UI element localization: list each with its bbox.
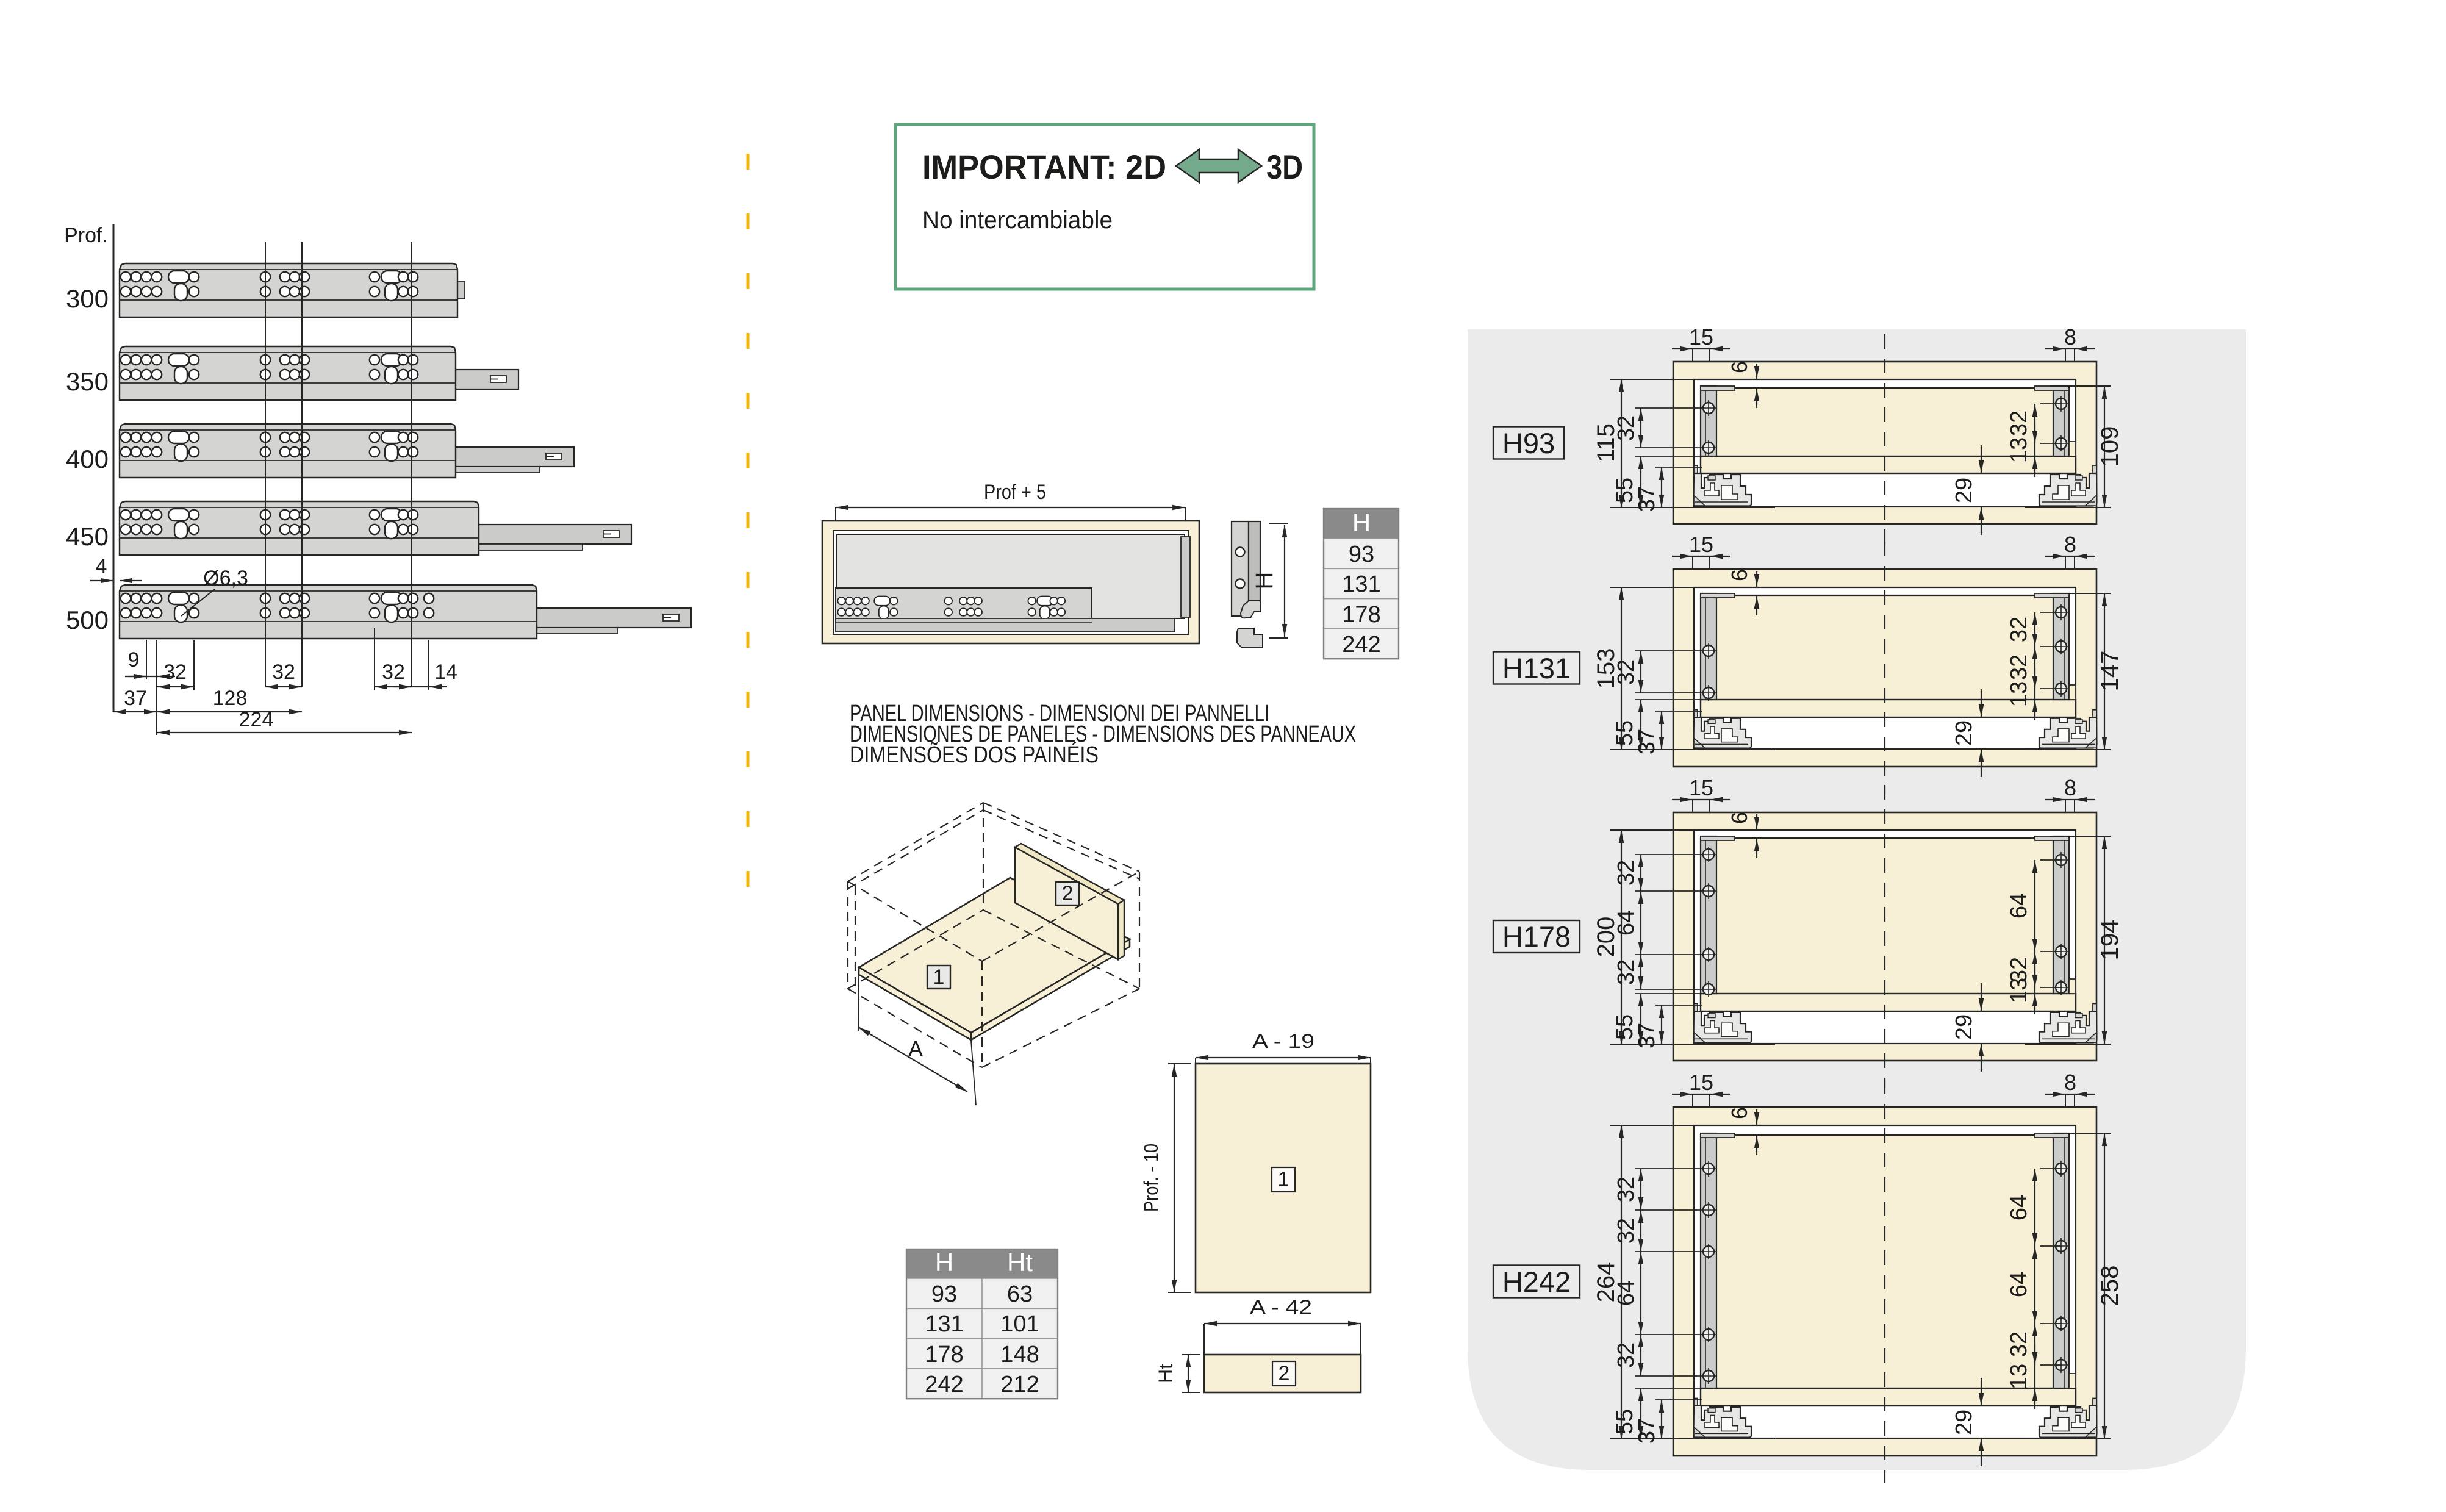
svg-text:500: 500 — [66, 606, 109, 634]
svg-text:A - 42: A - 42 — [1250, 1296, 1312, 1318]
svg-text:29: 29 — [1951, 720, 1977, 746]
svg-text:32: 32 — [1613, 1177, 1639, 1202]
svg-text:178: 178 — [1342, 602, 1380, 628]
svg-text:H: H — [1251, 572, 1278, 590]
svg-text:212: 212 — [1000, 1372, 1039, 1397]
svg-text:128: 128 — [213, 687, 248, 710]
svg-text:64: 64 — [1613, 910, 1639, 936]
svg-text:15: 15 — [1689, 1070, 1713, 1095]
svg-text:29: 29 — [1951, 1410, 1977, 1435]
svg-text:8: 8 — [2064, 324, 2076, 349]
svg-text:15: 15 — [1689, 324, 1713, 349]
svg-text:32: 32 — [272, 661, 295, 684]
svg-text:93: 93 — [931, 1281, 957, 1307]
svg-text:64: 64 — [2006, 893, 2032, 919]
svg-text:242: 242 — [1342, 632, 1380, 657]
svg-text:242: 242 — [925, 1372, 963, 1397]
svg-text:A - 19: A - 19 — [1252, 1030, 1314, 1052]
svg-text:64: 64 — [2006, 1272, 2032, 1297]
svg-text:6: 6 — [1727, 569, 1752, 581]
svg-text:64: 64 — [1613, 1280, 1639, 1306]
svg-text:194: 194 — [2096, 920, 2123, 961]
svg-text:258: 258 — [2096, 1266, 2123, 1306]
svg-text:101: 101 — [1000, 1311, 1039, 1337]
svg-text:1: 1 — [933, 966, 945, 989]
svg-text:32: 32 — [1613, 415, 1639, 441]
svg-text:350: 350 — [66, 367, 109, 396]
svg-text:32: 32 — [1613, 860, 1639, 886]
svg-text:Prof.: Prof. — [64, 224, 108, 247]
svg-text:Ht: Ht — [1155, 1364, 1177, 1383]
svg-text:29: 29 — [1951, 1014, 1977, 1040]
svg-text:178: 178 — [925, 1342, 963, 1367]
svg-text:13: 13 — [2006, 681, 2032, 707]
svg-text:A: A — [908, 1036, 923, 1061]
svg-text:32: 32 — [1613, 959, 1639, 985]
svg-text:3D: 3D — [1266, 148, 1303, 186]
svg-text:63: 63 — [1007, 1281, 1033, 1307]
svg-text:13: 13 — [2006, 437, 2032, 463]
svg-text:15: 15 — [1689, 775, 1713, 800]
svg-text:H242: H242 — [1502, 1266, 1571, 1298]
svg-text:8: 8 — [2064, 532, 2076, 557]
svg-text:Prof + 5: Prof + 5 — [984, 481, 1046, 504]
svg-text:H178: H178 — [1502, 920, 1571, 953]
svg-text:H: H — [935, 1248, 953, 1277]
svg-text:64: 64 — [2006, 1195, 2032, 1220]
svg-text:6: 6 — [1727, 361, 1752, 373]
svg-text:450: 450 — [66, 522, 109, 551]
svg-text:147: 147 — [2096, 651, 2123, 692]
svg-text:8: 8 — [2064, 775, 2076, 800]
svg-text:32: 32 — [2006, 1331, 2032, 1357]
svg-text:32: 32 — [163, 661, 187, 684]
svg-text:H93: H93 — [1502, 427, 1555, 459]
svg-text:6: 6 — [1727, 1107, 1752, 1119]
svg-text:37: 37 — [1634, 486, 1660, 512]
svg-text:4: 4 — [96, 555, 107, 578]
svg-text:32: 32 — [1613, 1342, 1639, 1368]
svg-text:131: 131 — [925, 1311, 963, 1337]
svg-text:32: 32 — [382, 661, 405, 684]
svg-text:Prof. - 10: Prof. - 10 — [1140, 1144, 1162, 1212]
svg-text:H: H — [1352, 508, 1371, 537]
svg-text:IMPORTANT: 2D: IMPORTANT: 2D — [922, 148, 1166, 186]
svg-text:13: 13 — [2006, 1364, 2032, 1389]
svg-text:15: 15 — [1689, 532, 1713, 557]
svg-text:13: 13 — [2006, 978, 2032, 1003]
svg-text:2: 2 — [1279, 1362, 1290, 1385]
svg-text:DIMENSÕES DOS PAINÉIS: DIMENSÕES DOS PAINÉIS — [850, 741, 1099, 768]
svg-text:Ø6,3: Ø6,3 — [203, 567, 248, 590]
svg-text:9: 9 — [128, 648, 140, 672]
svg-text:224: 224 — [239, 708, 274, 731]
svg-text:H131: H131 — [1502, 652, 1571, 684]
svg-text:37: 37 — [1634, 1023, 1660, 1048]
svg-text:6: 6 — [1727, 812, 1752, 824]
svg-text:109: 109 — [2096, 426, 2123, 467]
svg-text:8: 8 — [2064, 1070, 2076, 1095]
svg-text:148: 148 — [1000, 1342, 1039, 1367]
svg-text:32: 32 — [1613, 659, 1639, 685]
svg-text:400: 400 — [66, 445, 109, 473]
svg-text:1: 1 — [1278, 1168, 1289, 1191]
svg-text:32: 32 — [2006, 654, 2032, 680]
svg-text:2: 2 — [1062, 882, 1074, 905]
svg-text:32: 32 — [2006, 410, 2032, 436]
svg-text:300: 300 — [66, 284, 109, 313]
svg-text:No intercambiable: No intercambiable — [922, 207, 1113, 234]
svg-text:131: 131 — [1342, 571, 1380, 597]
svg-text:14: 14 — [434, 661, 457, 684]
svg-text:37: 37 — [1634, 729, 1660, 754]
svg-text:37: 37 — [1634, 1418, 1660, 1444]
svg-text:Ht: Ht — [1007, 1248, 1033, 1277]
svg-text:37: 37 — [124, 687, 147, 710]
svg-text:32: 32 — [2006, 617, 2032, 642]
svg-text:93: 93 — [1349, 542, 1374, 567]
svg-text:32: 32 — [1613, 1218, 1639, 1244]
svg-text:29: 29 — [1951, 478, 1977, 503]
